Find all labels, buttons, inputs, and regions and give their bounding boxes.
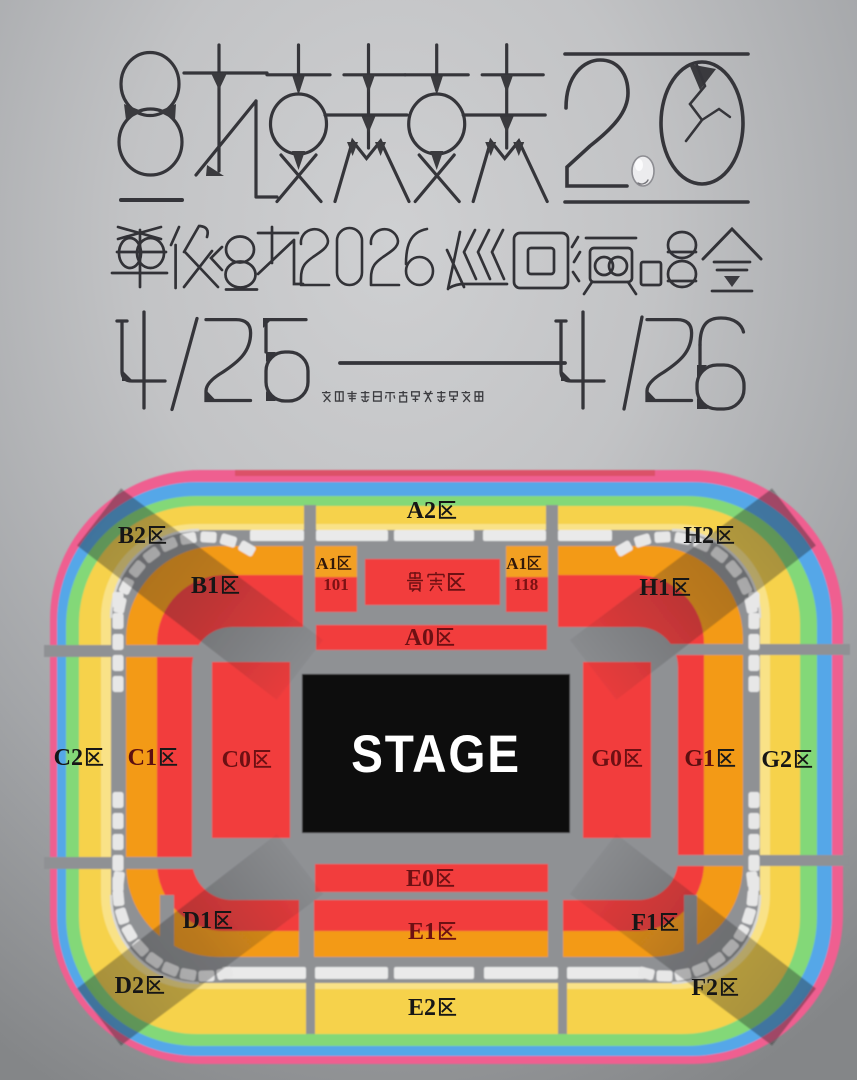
svg-text:A2: A2 — [407, 498, 436, 524]
svg-text:E1: E1 — [408, 919, 436, 945]
svg-text:G2: G2 — [761, 747, 792, 773]
svg-text:D2: D2 — [115, 973, 144, 999]
svg-text:C1: C1 — [128, 745, 157, 771]
svg-text:C0: C0 — [222, 747, 251, 773]
svg-text:C2: C2 — [54, 745, 83, 771]
svg-text:A1: A1 — [506, 554, 527, 573]
svg-text:D1: D1 — [183, 908, 212, 934]
svg-text:A0: A0 — [405, 625, 434, 651]
svg-text:E2: E2 — [408, 995, 436, 1021]
svg-text:STAGE: STAGE — [351, 724, 521, 784]
svg-text:E0: E0 — [406, 866, 434, 892]
svg-text:A1: A1 — [316, 554, 337, 573]
svg-text:F2: F2 — [691, 975, 718, 1001]
svg-text:G0: G0 — [591, 746, 622, 772]
svg-text:B2: B2 — [118, 523, 146, 549]
svg-text:H1: H1 — [639, 575, 670, 601]
svg-text:101: 101 — [323, 575, 349, 594]
svg-text:H2: H2 — [683, 523, 714, 549]
svg-text:118: 118 — [514, 575, 539, 594]
svg-text:G1: G1 — [684, 746, 715, 772]
svg-text:F1: F1 — [631, 910, 658, 936]
svg-text:B1: B1 — [191, 573, 219, 599]
